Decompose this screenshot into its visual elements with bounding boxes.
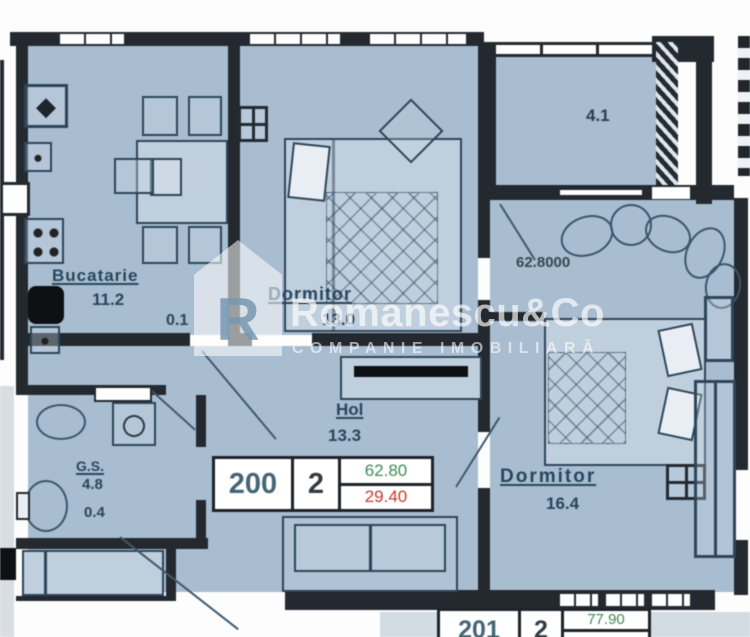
apartment-areas: 77.90 [564,611,648,637]
apartment-number: 201 [440,611,521,637]
window-top-3 [368,32,466,46]
bedroom1-area: 13.0 [322,310,355,330]
wall-bath-right-1 [196,395,206,447]
living-dimension: 62.8000 [516,254,570,271]
wall-right-stub [696,42,712,204]
headboard [704,296,734,362]
chair [142,96,178,136]
bench-divider [44,550,47,596]
chair [114,158,154,194]
bathroom-area2: 0.4 [84,504,105,521]
pillow [287,142,331,202]
exterior-margin [0,386,14,637]
window-bottom-3 [648,594,692,606]
wardrobe [694,380,736,558]
window-top-1 [58,32,124,46]
kitchen-area: 11.2 [92,290,124,310]
window-top-2 [248,32,340,46]
window-bottom-2 [602,594,646,606]
rug-bedroom2 [548,352,626,444]
chair [188,226,222,264]
bathroom-area: 4.8 [82,476,103,493]
wall-smallroom-bottom [16,596,176,601]
window-bottom-1 [556,594,600,606]
floorplan-drawing: ◆ Bucatarie 11.2 0 [0,0,750,637]
toilet [24,480,68,532]
opening-below-balcony [652,187,690,199]
kitchen-area2: 0.1 [166,312,188,330]
stove [24,218,64,264]
wall-bath-right-2 [196,500,206,540]
floorplan-image: ◆ Bucatarie 11.2 0 [0,0,750,637]
kitchen-appliance [24,142,52,172]
balcony-area: 4.1 [586,106,610,126]
ventilation-shaft: ◆ [24,84,68,128]
sofa-cushion-divider [369,524,372,572]
ventilation-icon: ◆ [36,93,56,119]
chair [142,226,178,264]
washing-machine [112,402,156,446]
wall-dashed-right [738,36,750,176]
tv-cabinet [340,356,482,400]
bathroom-label: G.S. [76,458,104,474]
dining-table-inner [150,158,182,196]
apartment-number: 200 [215,459,294,509]
apartment-tag-200: 200 2 62.80 29.40 [212,456,434,512]
wall-balcony-left [478,42,496,190]
wall-center-vert-1 [478,200,490,258]
apartment-total-area: 77.90 [564,611,648,632]
kitchen-appliance-2 [30,326,60,354]
apartment-rooms: 2 [294,459,341,509]
window-balcony [484,42,656,57]
wall-bedroom1-bottom [312,333,478,346]
apartment-tag-201: 201 2 77.90 [437,608,651,637]
apartment-living-area: 29.40 [341,486,431,510]
apartment-living-area [564,632,648,637]
bedroom2-area: 16.4 [546,494,579,514]
apartment-areas: 62.80 29.40 [341,459,431,509]
wall-living-bedroom2 [482,312,544,321]
toilet-tank [16,492,30,520]
door-block [0,548,16,580]
wall-bath-bottom [16,538,208,549]
hall-area: 13.3 [328,426,361,446]
chair [188,96,222,136]
wall-center-vert-3 [478,488,490,592]
wall-kitchen-bedroom1 [228,46,240,336]
tv-cabinet-bar [354,366,468,377]
wall-hatched-balcony [656,42,678,185]
wall-right-outer-2 [734,540,748,595]
bath-shelf [94,386,152,402]
room-balcony [496,57,656,187]
wall-bedroom1-bottom-stub [228,333,252,346]
kitchen-label: Bucatarie [52,266,138,286]
apartment-rooms: 2 [521,611,564,637]
kitchen-sink [28,286,64,324]
bedroom1-label: Dormitor [268,284,352,305]
bedroom2-label: Dormitor [500,466,596,488]
wall-right-outer-1 [734,198,748,470]
apartment-total-area: 62.80 [341,459,431,486]
nightstand [238,106,268,142]
balcony-door-window [560,188,642,197]
hall-label: Hol [336,400,363,420]
bath-sink [36,404,86,440]
wall-connector-left [0,182,30,216]
